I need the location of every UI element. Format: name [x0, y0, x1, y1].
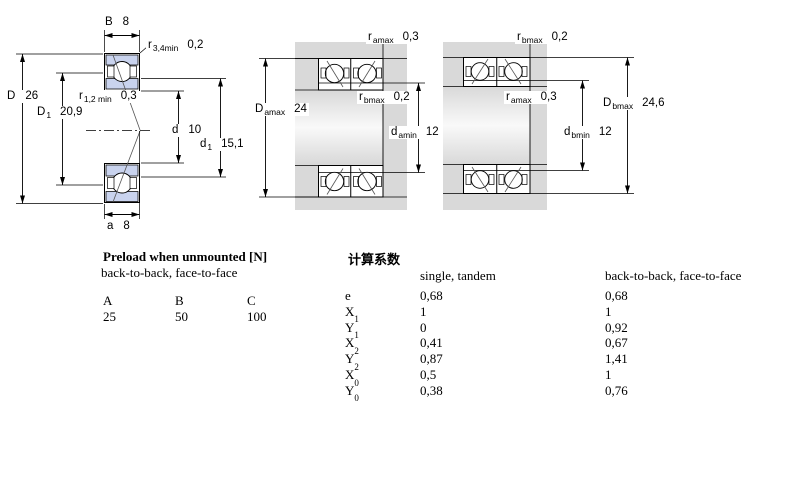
dim-label-d: d10 [170, 124, 203, 137]
preload-table-subtitle: back-to-back, face-to-face [101, 265, 237, 281]
dim-label-a: a8 [105, 220, 132, 233]
factor-value: 0,87 [420, 351, 605, 367]
dim-label-damin: damin12 [389, 126, 441, 139]
factor-value: 0,38 [420, 383, 605, 399]
preload-table-grid: A B C 25 50 100 [103, 293, 319, 325]
preload-col-header: B [175, 293, 247, 309]
dim-label-r12min: r1,2 min0,3 [77, 90, 139, 103]
factor-value: 1 [420, 304, 605, 320]
dim-label-d1: d115,1 [198, 138, 246, 151]
dim-label-dbmin: dbmin12 [562, 126, 614, 139]
factor-row-label: X1 [345, 304, 420, 320]
dim-label-D1: D120,9 [35, 106, 84, 119]
factor-value: 0,5 [420, 367, 605, 383]
factors-empty-header [345, 268, 420, 288]
factors-table-title: 计算系数 [348, 249, 400, 268]
factor-value: 1,41 [605, 351, 741, 367]
preload-value: 25 [103, 309, 175, 325]
factor-value: 0,68 [420, 288, 605, 304]
mounted-pair-figure-b [443, 44, 634, 194]
mounted-pair-figure-a [259, 44, 425, 197]
dim-label-D: D26 [5, 90, 40, 103]
factors-col2-header: back-to-back, face-to-face [605, 268, 741, 288]
dim-label-rbmax-a: rbmax0,2 [357, 91, 412, 104]
factor-value: 0,76 [605, 383, 741, 399]
factors-col1-header: single, tandem [420, 268, 605, 288]
dim-label-rbmax-b: rbmax0,2 [515, 31, 570, 44]
preload-col-header: C [247, 293, 319, 309]
factor-value: 0,92 [605, 320, 741, 336]
dim-label-r34min: r3,4min0,2 [146, 39, 205, 52]
dim-label-ramax-b: ramax0,3 [504, 91, 559, 104]
dim-label-Damax: Damax24 [253, 103, 309, 116]
factor-value: 0,68 [605, 288, 741, 304]
factor-row-label: e [345, 288, 420, 304]
dim-label-ramax-a: ramax0,3 [366, 31, 421, 44]
bearing-spec-page: B8 r3,4min0,2 D26 r1,2 min0,3 D120,9 d10… [0, 0, 800, 500]
factor-value: 0,67 [605, 335, 741, 351]
factor-value: 0,41 [420, 335, 605, 351]
factor-value: 1 [605, 304, 741, 320]
factor-value: 1 [605, 367, 741, 383]
preload-col-header: A [103, 293, 175, 309]
factors-table-grid: single, tandem back-to-back, face-to-fac… [345, 268, 741, 399]
preload-value: 100 [247, 309, 319, 325]
factor-value: 0 [420, 320, 605, 336]
dim-label-B: B8 [103, 16, 131, 29]
preload-value: 50 [175, 309, 247, 325]
dim-label-Dbmax: Dbmax24,6 [601, 97, 667, 110]
preload-table-title: Preload when unmounted [N] [103, 249, 267, 265]
